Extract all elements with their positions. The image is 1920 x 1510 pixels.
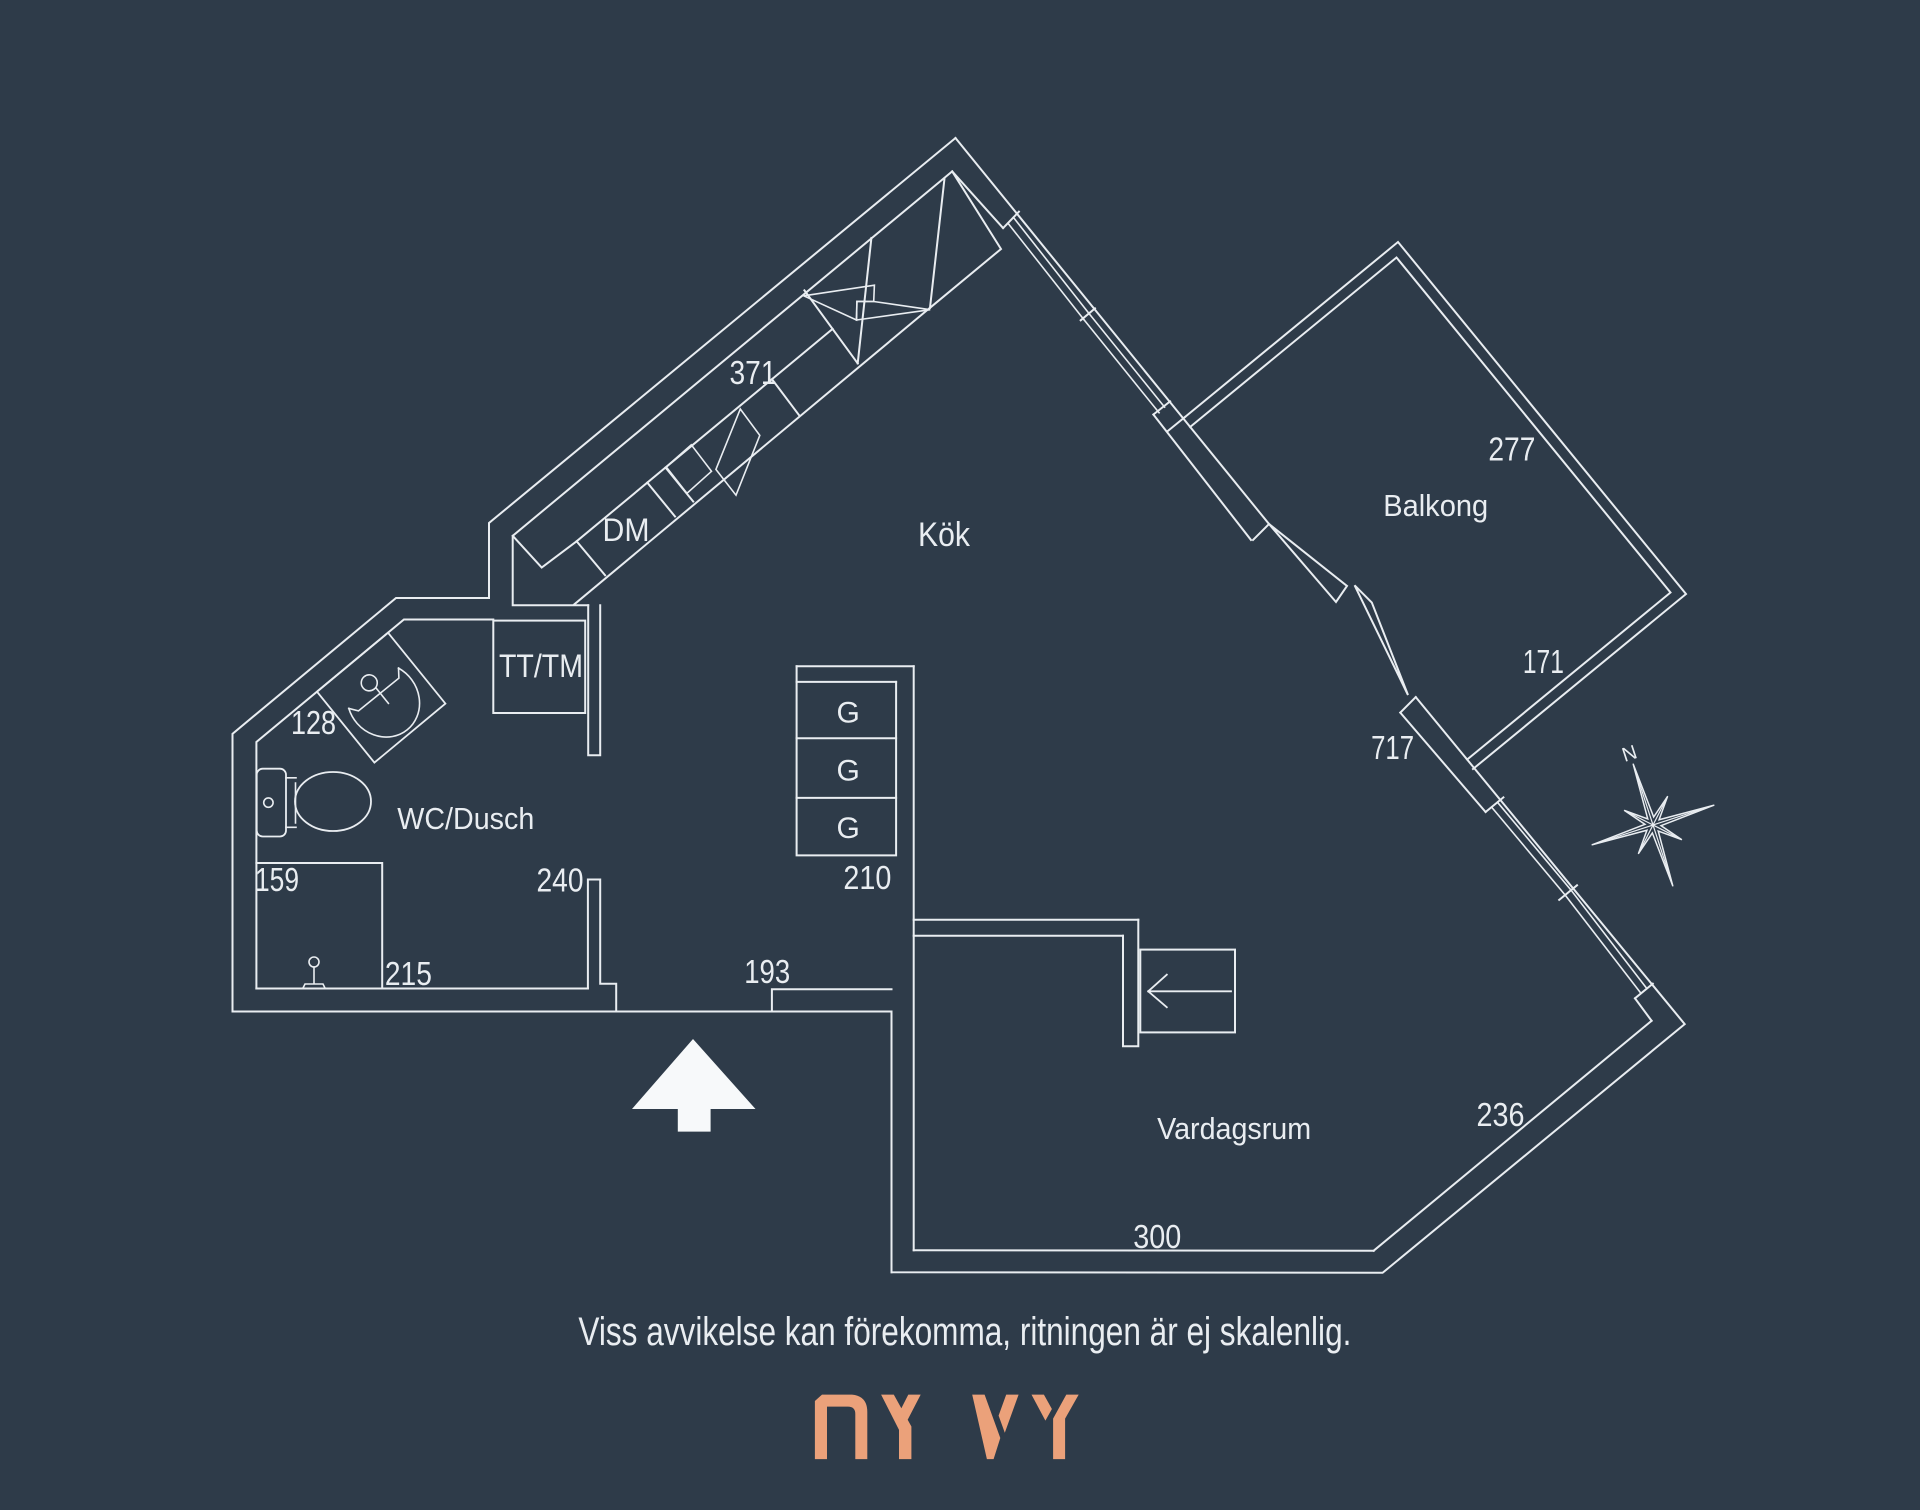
svg-text:300: 300 xyxy=(1133,1218,1181,1255)
svg-text:236: 236 xyxy=(1477,1096,1525,1133)
svg-text:159: 159 xyxy=(255,861,299,898)
svg-text:277: 277 xyxy=(1488,430,1535,467)
svg-text:G: G xyxy=(837,697,860,730)
svg-text:Viss avvikelse kan förekomma,: Viss avvikelse kan förekomma, ritningen … xyxy=(578,1310,1351,1354)
svg-text:Vardagsrum: Vardagsrum xyxy=(1157,1111,1311,1146)
svg-text:371: 371 xyxy=(730,354,777,391)
svg-text:WC/Dusch: WC/Dusch xyxy=(397,801,534,836)
svg-text:TT/TM: TT/TM xyxy=(499,648,583,684)
svg-text:128: 128 xyxy=(291,704,336,741)
svg-text:171: 171 xyxy=(1523,643,1564,680)
svg-text:DM: DM xyxy=(603,512,650,548)
svg-text:Kök: Kök xyxy=(918,516,971,554)
svg-text:240: 240 xyxy=(537,862,584,899)
svg-text:G: G xyxy=(837,812,860,845)
svg-text:193: 193 xyxy=(744,953,790,990)
svg-text:Balkong: Balkong xyxy=(1383,488,1488,523)
svg-text:215: 215 xyxy=(385,955,432,992)
svg-text:717: 717 xyxy=(1371,729,1414,766)
svg-text:G: G xyxy=(837,755,860,788)
svg-text:210: 210 xyxy=(843,859,891,896)
